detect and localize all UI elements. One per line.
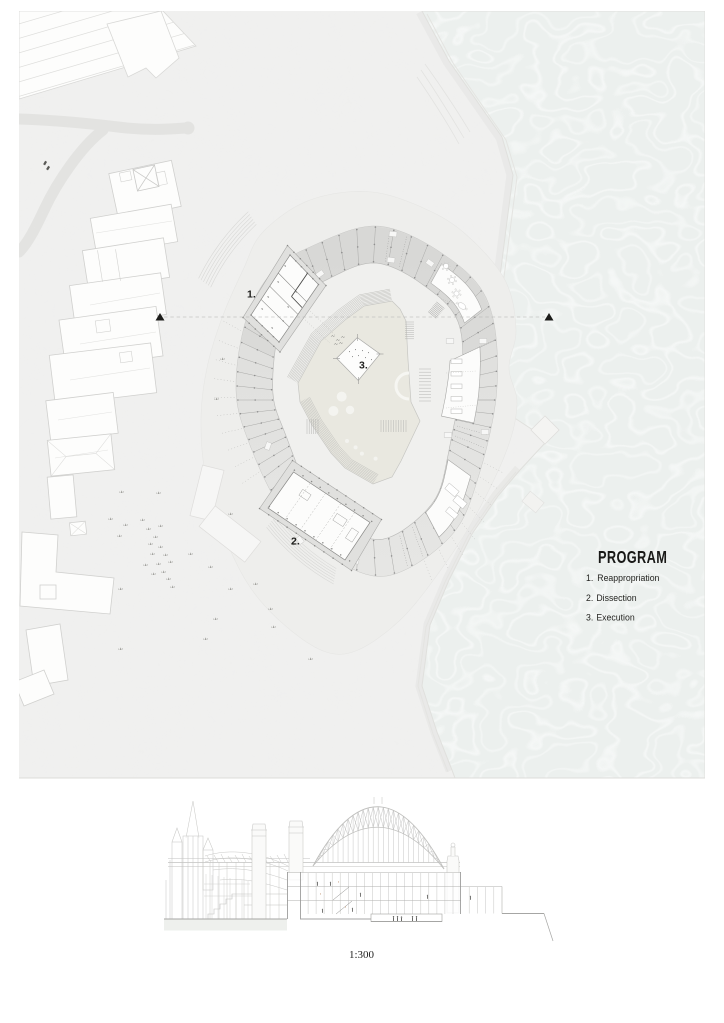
svg-text:PROGRAM: PROGRAM: [598, 548, 667, 567]
svg-text:2.: 2.: [291, 536, 300, 548]
svg-text:1:300: 1:300: [349, 949, 375, 961]
svg-text:1.: 1.: [586, 573, 593, 583]
svg-text:3.: 3.: [586, 612, 593, 622]
svg-text:2.: 2.: [586, 593, 593, 603]
svg-text:1.: 1.: [247, 289, 256, 301]
svg-text:Reappropriation: Reappropriation: [597, 573, 659, 583]
svg-text:Dissection: Dissection: [596, 593, 636, 603]
svg-text:3.: 3.: [359, 360, 368, 372]
svg-text:Execution: Execution: [596, 612, 634, 622]
